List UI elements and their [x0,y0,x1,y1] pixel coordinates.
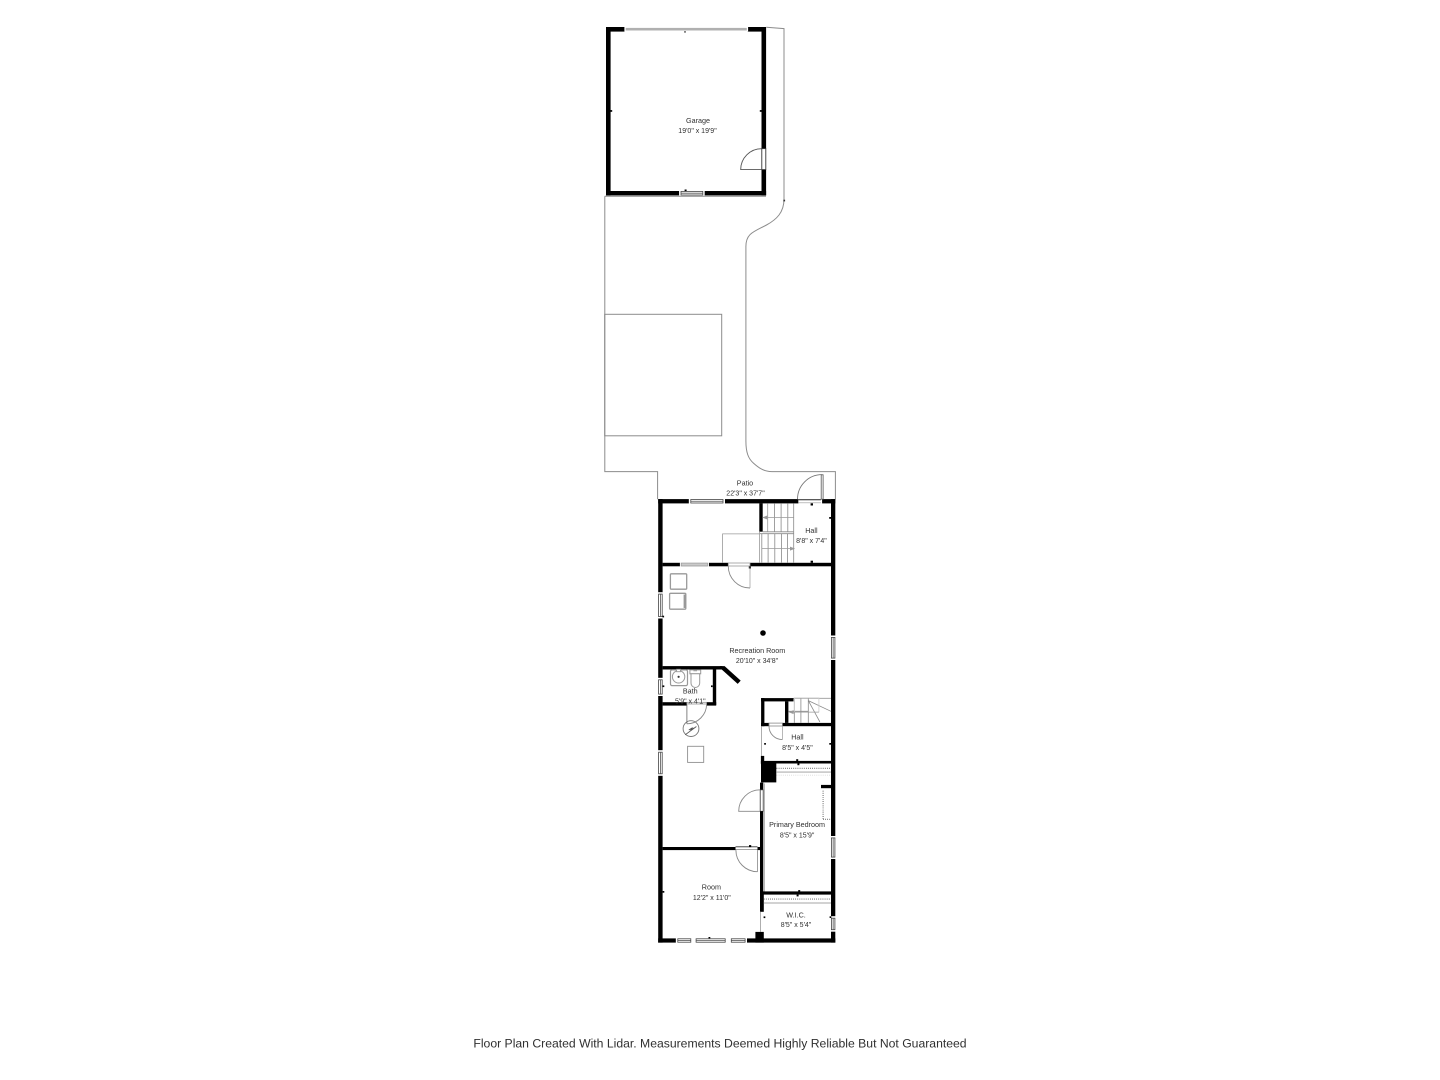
svg-text:8'5" x 15'9": 8'5" x 15'9" [780,832,815,839]
svg-text:5'9" x 4'1": 5'9" x 4'1" [675,698,706,705]
svg-text:19'0" x 19'9": 19'0" x 19'9" [678,128,717,135]
svg-text:12'2" x 11'0": 12'2" x 11'0" [693,895,731,902]
svg-text:Patio: Patio [737,478,753,487]
svg-text:Recreation Room: Recreation Room [729,646,785,655]
svg-text:8'5" x 4'5": 8'5" x 4'5" [782,745,813,752]
svg-text:Floor Plan Created With Lidar.: Floor Plan Created With Lidar. Measureme… [473,1036,966,1050]
svg-text:Hall: Hall [805,526,818,535]
svg-text:Bath: Bath [683,686,698,695]
svg-text:8'5" x 5'4": 8'5" x 5'4" [781,922,812,929]
svg-text:Room: Room [702,883,721,892]
svg-text:Primary Bedroom: Primary Bedroom [769,820,825,829]
svg-text:Hall: Hall [791,733,804,742]
svg-text:22'3" x 37'7": 22'3" x 37'7" [726,491,765,498]
svg-text:W.I.C.: W.I.C. [786,911,806,920]
svg-text:8'8" x 7'4": 8'8" x 7'4" [796,538,827,545]
svg-text:20'10" x 34'8": 20'10" x 34'8" [736,658,779,665]
svg-text:Garage: Garage [686,116,710,125]
